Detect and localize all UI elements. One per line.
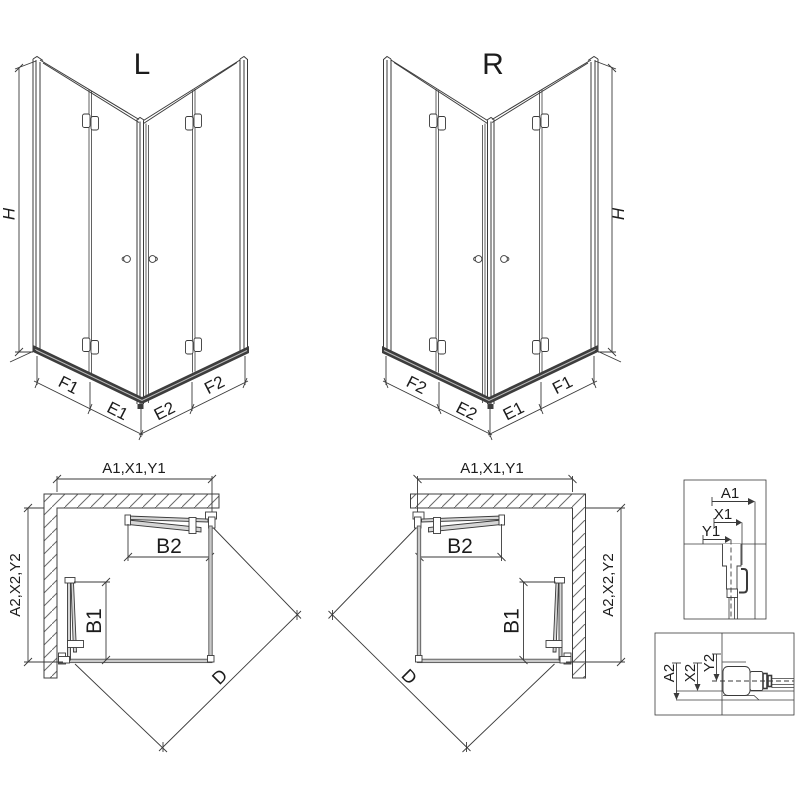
variant-label-left: L: [134, 48, 151, 81]
detail-a1-label: A1: [721, 485, 739, 502]
variant-label-right: R: [482, 48, 504, 81]
segment-f2-left: F2: [201, 372, 227, 398]
segment-e1-right: E1: [500, 398, 527, 424]
height-dimension-label-left: H: [0, 207, 19, 220]
plan-view-right: A1,X1,Y1 A2,X2,Y2 B2 B1 D: [329, 460, 626, 752]
height-dimension-label-right: H: [609, 207, 628, 220]
detail-x1-label: X1: [714, 506, 732, 523]
plan-width-label-left: A1,X1,Y1: [102, 460, 165, 477]
detail-box-profile-bottom: A2 X2 Y2: [655, 633, 794, 715]
detail-y1-label: Y1: [702, 523, 720, 540]
segment-e2-right: E2: [453, 398, 480, 424]
detail-box-profile-top: A1 X1 Y1: [684, 480, 766, 619]
perspective-view-right: R H F2 E2 E1 F1: [382, 48, 628, 440]
perspective-view-left: L H F1 E1 E2 F2: [0, 48, 249, 440]
segment-f1-right: F1: [549, 372, 575, 398]
technical-drawing: L H F1 E1 E2 F2 R H F2 E2 E1 F1 A1,X1,Y1…: [0, 0, 800, 800]
plan-depth-label-left: A2,X2,Y2: [7, 553, 24, 616]
diagonal-label-left: D: [208, 665, 231, 688]
segment-f2-right: F2: [403, 372, 429, 398]
plan-depth-label-right: A2,X2,Y2: [600, 553, 617, 616]
door-b1-label-left: B1: [83, 608, 106, 634]
detail-y2-label: Y2: [701, 654, 718, 672]
segment-e1-left: E1: [104, 398, 131, 424]
segment-f1-left: F1: [55, 372, 81, 398]
plan-view-left: A1,X1,Y1 A2,X2,Y2 B2 B1 D: [7, 460, 301, 752]
door-b2-label-right: B2: [447, 535, 473, 558]
door-b1-label-right: B1: [501, 608, 524, 634]
segment-e2-left: E2: [151, 398, 178, 424]
door-b2-label-left: B2: [156, 535, 182, 558]
detail-x2-label: X2: [682, 664, 699, 682]
detail-a2-label: A2: [661, 664, 678, 682]
plan-width-label-right: A1,X1,Y1: [460, 460, 523, 477]
diagonal-label-right: D: [398, 665, 421, 688]
